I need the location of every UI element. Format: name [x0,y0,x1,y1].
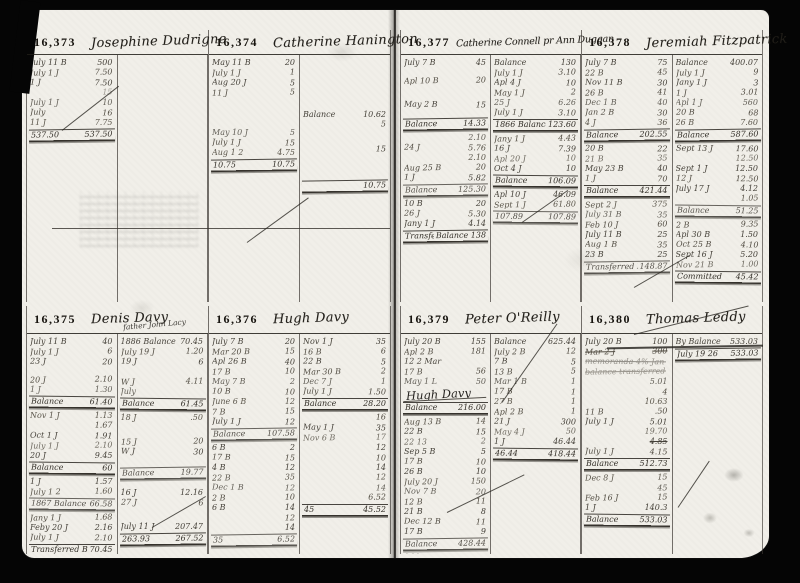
entry-date-ref: May 10 J [212,128,288,138]
ledger-entry: July 20 B155 [401,337,490,347]
entry-amount: 1.05 [740,193,758,203]
account-number: 16,377 [408,35,450,50]
balance-total-entry: Balance421.44 [584,185,670,196]
entry-amount: 10 [376,453,386,463]
ledger-entry: July 1 21.60 [27,486,117,497]
entry-amount: 12 [285,417,295,427]
account-holder-name: Hugh Davy [273,310,350,327]
ledger-entry: 10.63 [582,397,672,407]
entry-amount: 2.16 [95,523,113,533]
ledger-entry: 12.50 [673,153,763,164]
entry-date-ref: May 1 J [494,88,569,99]
ledger-entry: 1 J3.01 [673,87,763,98]
ledger-entry: 12 J12.50 [673,174,763,185]
entry-amount: 50 [566,426,576,436]
entries-column-1: July 11 B40July 1 J623 J2020 J2.101 J1.3… [27,334,118,554]
entry-amount: 4 [662,387,667,397]
entry-amount: 40 [657,98,667,108]
entry-amount: 2 [381,366,386,376]
entry-amount: 15 [476,100,486,110]
entry-date-ref: Feb 16 J [585,493,655,504]
entry-date-ref: July 1 J [30,441,93,452]
entry-amount: 10 [566,153,576,163]
entry-date-ref [30,95,100,96]
balance-total-entry: Balance14.33 [403,117,488,129]
entry-amount: 3.10 [558,67,576,77]
entry-amount: 3.10 [558,108,576,118]
entry-date-ref: 263.93 [121,534,173,545]
entry-date-ref: 26 B [585,88,655,99]
entry-date-ref: July 19 26 [676,349,728,360]
ledger-entry: 20 B68 [673,108,763,119]
account-number: 16,373 [34,35,76,50]
entry-amount: 1.30 [95,385,113,395]
entry-date-ref: Sep 5 B [404,447,479,457]
ledger-entry: 11 J5 [209,87,299,98]
entry-amount: 14 [285,503,295,513]
entry-amount: 20 [193,436,203,446]
entry-amount: 70.45 [90,545,113,554]
entry-date-ref: July 1 J [30,533,93,544]
entry-amount: 8 [481,507,486,517]
entry-amount: 61.80 [553,199,576,209]
ledger-entry: July 1 J10 [27,98,117,108]
ledger-entry: 1886 Balance70.45 [118,337,208,347]
account-panel-16379: 16,379Peter O'ReillyJuly 20 B155Apl 2 B1… [400,306,581,554]
ledger-entry: Balance130 [491,58,580,68]
entry-amount: 28.20 [363,399,386,409]
entry-amount: 40 [657,164,667,174]
entry-date-ref: Balance [676,130,728,141]
ledger-entry: Sept 1 J12.50 [673,164,763,174]
ledger-entry: July 1 J1.50 [300,387,390,398]
entry-date-ref: Balance [494,337,546,347]
ledger-entry: July 1 J2.10 [27,533,117,544]
ledger-entry: 17 B15 [209,453,299,464]
left-page-bottom-row: 16,375Denis Davyfather John LacyJuly 11 … [26,306,391,554]
entry-amount: 1.20 [185,346,203,356]
ledger-entry: Jany 1 J4.14 [401,219,490,229]
entry-amount: 418.44 [548,449,576,459]
entry-amount: 4.10 [740,240,758,250]
ledger-entry: 12 [300,443,390,453]
ledger-entry: W J30 [118,447,208,458]
ledger-entry: 17 B9 [401,527,490,537]
entry-amount: 25 [657,230,667,240]
balance-total-entry: TransferredBalance 138 [403,229,488,241]
ledger-entry: 20 J2.10 [27,374,117,385]
entry-date-ref: Transferred [405,231,434,241]
entry-amount: 9.35 [740,219,758,229]
ledger-entry: 26 J5.30 [401,209,490,220]
entry-amount: 35 [285,472,295,482]
balance-total-entry: 46.44418.44 [493,448,578,460]
ledger-entry: Sep 5 B5 [401,447,490,457]
entry-date-ref: Committed [676,272,733,283]
entry-date-ref: 17 B [404,527,479,537]
entry-date-ref: 537.50 [31,130,83,141]
entry-date-ref: July 11 B [30,337,100,347]
entry-amount: 20 [476,162,486,172]
entry-date-ref [303,500,366,501]
entry-date-ref: Balance [676,58,729,68]
entry-amount: 45.52 [363,505,386,515]
entry-date-ref: Apl 10 J [494,190,551,200]
entry-amount: 6 [107,346,112,356]
entry-amount: 5 [290,128,295,138]
entry-date-ref: Balance [304,399,361,409]
entry-date-ref [303,420,374,421]
entry-date-ref: 1866 Balance [495,120,546,130]
entry-amount: 6 [381,346,386,356]
entry-amount: 428.44 [458,538,486,548]
entry-amount: 20 [476,75,486,85]
entry-date-ref: July 20 B [404,337,469,347]
entry-amount: 5 [381,119,386,129]
entry-date-ref: May 1 L [404,377,474,387]
entry-amount: 12 [285,513,295,523]
entry-amount: 15 [285,138,295,148]
ledger-entry: 1 J70 [582,174,672,185]
entry-date-ref: 25 J [494,98,556,108]
ledger-entry: Balance400.07 [673,58,763,68]
entry-amount: 14.33 [463,118,486,128]
entry-date-ref: Nov 1 J [30,411,93,421]
entry-date-ref: 16 J [121,488,179,498]
ledger-entry: 15 [300,144,390,155]
entry-date-ref: Dec 12 B [404,517,474,528]
ledger-entry: 23 B25 [582,250,672,260]
entry-amount: 16 [102,108,112,118]
entry-date-ref: Balance [303,110,361,120]
entry-date-ref: Transferred Balance [31,545,88,554]
ledger-entry: Dec 1 B40 [582,98,672,108]
ledger-entry: 5 [300,119,390,130]
entry-amount: 1 [290,67,295,77]
entries-column-2: Nov 1 J3516 B622 B5Mar 30 B2Dec 7 J1July… [300,334,390,554]
entry-date-ref: 19 J [120,357,196,368]
ledger-entry: 17 B10 [209,366,299,377]
entry-date-ref [212,520,283,521]
entry-amount: 61.40 [90,397,113,407]
entry-amount: 12.16 [180,488,203,498]
entry-amount: 60 [657,219,667,229]
entry-date-ref: Nov 6 B [303,433,374,444]
ledger-entry: 17 B1 [491,387,580,398]
ledger-entry: May 11 B20 [209,58,299,68]
entry-date-ref: Balance [121,399,178,410]
entry-amount: 181 [471,346,486,356]
ledger-entry: July 11 B40 [27,337,117,347]
entry-amount: 6.52 [277,534,295,544]
entry-date-ref: Balance [213,429,265,440]
ledger-entry: 12 [209,513,299,524]
entry-amount: 4.11 [185,376,203,386]
entry-date-ref: Sept 1 J [676,164,734,174]
entry-date-ref: July 20 B [585,337,650,347]
ledger-entry: May 1 L50 [401,377,490,387]
entry-date-ref: 12 J [675,174,733,185]
entry-amount: 587.60 [730,129,758,139]
entries-column-1: July 7 B7522 B45Nov 11 B3026 B41Dec 1 B4… [582,55,673,302]
entry-date-ref: Apl 4 J [494,78,564,89]
entry-amount: 4.15 [650,447,668,457]
entry-amount: 512.73 [640,459,668,469]
account-entries: July 7 B45Apl 10 B20May 2 B15Balance14.3… [401,55,581,302]
ledger-entry: 6 B14 [209,503,299,513]
entry-date-ref: July 1 J [494,108,556,119]
balance-total-entry: Balance61.45 [119,398,205,410]
ledger-entry: July 1 J3.10 [491,108,580,119]
entry-date-ref: Mar 1 B [494,377,569,387]
entry-date-ref: 266 [404,553,484,554]
account-entries: May 11 B20July 1 J1Aug 20 J511 J5May 10 … [209,55,390,302]
entry-date-ref: 1 J [30,477,93,487]
entry-amount: 2.10 [95,440,113,450]
entry-date-ref: 17 B [404,367,474,378]
entry-date-ref: Transferred Balance [586,262,638,273]
entry-amount: 25 [657,250,667,260]
entry-amount: 1.68 [95,512,113,522]
ledger-entry: July 17 J4.12 [673,184,763,194]
ledger-entry: 19 J6 [118,357,208,368]
entry-date-ref: 17 B [404,457,474,468]
entry-date-ref: Mar 30 B [303,367,379,378]
scanned-ledger-photo: { "colors": { "background": "#050505", "… [0,0,800,583]
ledger-entry: Aug 1 24.75 [209,148,299,158]
entry-amount: 11 [476,517,486,527]
ledger-entry: 24 J5.76 [401,143,490,154]
entry-date-ref: July 11 B [30,58,95,68]
entry-amount: 60 [102,463,112,473]
entry-amount: 19.70 [645,426,668,436]
entry-date-ref: 17 B [212,367,283,378]
account-entries: July 11 B500July 1 J7.501 J7.5015July 1 … [27,55,208,302]
ledger-entry: June 6 B12 [209,397,299,407]
entry-amount: 1.50 [740,230,758,240]
entry-date-ref [585,490,655,491]
entry-amount: 140.3 [645,503,668,513]
entry-date-ref: 1 J [494,437,551,447]
entries-column-1: May 11 B20July 1 J1Aug 20 J511 J5May 10 … [209,55,300,302]
entry-date-ref: Balance [405,403,456,413]
entry-date-ref: July 7 B [212,337,283,347]
entry-date-ref: 4 B [212,463,283,473]
entry-date-ref: 6 B [212,443,288,453]
entry-amount: 10 [285,366,295,376]
ledger-entry: 20 J9.45 [27,451,117,461]
account-panel-16373: 16,373Josephine DudrigneJuly 11 B500July… [26,30,208,302]
ledger-entry: 1.05 [673,193,763,204]
ledger-entry: 4 [582,387,672,398]
balance-total-entry: Balance587.60 [674,128,760,140]
balance-total-entry: July 19 26533.03 [674,347,760,359]
entry-amount: 12 [376,443,386,453]
entry-date-ref: 20 J [30,375,93,386]
ledger-entry: May 2 B15 [401,100,490,111]
entry-amount: 51.25 [735,206,758,216]
ledger-entry: 10 [300,453,390,464]
entry-date-ref: May 23 B [585,164,655,174]
ledger-entry: 17 B10 [401,457,490,468]
right-page-bottom-row: 16,379Peter O'ReillyJuly 20 B155Apl 2 B1… [400,306,763,554]
entry-amount: 10 [476,457,486,467]
balance-total-entry: 4545.52 [302,504,388,515]
ledger-entry: July 1 J15 [209,138,299,149]
entry-amount: 7.75 [95,118,113,128]
ledger-entry: 1 J140.3 [582,503,672,513]
entry-amount: 15 [285,453,295,463]
entry-amount: 14 [476,416,486,426]
balance-total-entry: Balance512.73 [584,458,670,469]
entry-amount: 9 [481,527,486,537]
balance-total-entry: Balance125.30 [403,183,488,195]
entry-amount: 1 [571,377,576,387]
entry-date-ref: Apl 1 J [676,98,741,108]
ledger-entry: 2 B10 [209,492,299,503]
entry-date-ref: Sept 13 J [675,144,733,155]
entry-date-ref: Balance [586,186,638,196]
ledger-entry: 26 B10 [401,467,490,477]
entry-date-ref: July 31 B [585,210,655,221]
entry-amount: 20 [102,357,112,367]
entries-column-1: July 11 B500July 1 J7.501 J7.5015July 1 … [27,55,118,302]
ledger-entry: 26 B41 [582,87,672,98]
ledger-entry: 1 J46.44 [491,437,580,447]
entry-amount: 61.45 [180,399,203,409]
account-header: 16,378Jeremiah Fitzpatrick [582,30,762,55]
entry-amount: 17 [376,432,386,442]
ledger-entry: Dec 7 J1 [300,377,390,387]
account-panel-16380: 16,380Thomas LeddyJuly 20 B100Mar 2 J300… [581,306,762,554]
entry-date-ref: 26 J [404,209,466,220]
entry-date-ref: May 1 J [303,423,374,434]
ledger-entry: 26 B7.60 [673,118,763,128]
entry-date-ref: 21 B [404,507,479,517]
ledger-entry: May 7 B2 [209,377,299,387]
entry-amount: .50 [190,413,203,423]
account-holder-name: Peter O'Reilly [465,310,560,328]
ledger-entry: Balance625.44 [491,337,580,347]
ledger-entry: Sept 16 J5.20 [673,250,763,260]
entry-date-ref: July 17 J [676,184,739,194]
ledger-entry: Jan 2 B30 [582,108,672,119]
entry-amount: 68 [748,108,758,118]
entry-amount: 10 [566,164,576,174]
entry-date-ref: Oct 25 B [675,240,738,251]
entry-date-ref: Balance [495,176,546,187]
entry-date-ref: Oct 1 J [30,431,93,442]
entry-date-ref: 11 J [30,118,93,128]
ruled-line [52,228,390,229]
entry-amount: 10.75 [363,180,386,190]
entry-amount: 15 [657,492,667,502]
entry-amount: 125.30 [458,184,486,194]
account-panel-16376: 16,376Hugh DavyJuly 7 B20Mar 20 B15Apl 2… [208,306,390,554]
entry-date-ref: Apl 30 B [676,230,739,240]
ledger-entry: July 1 J12 [209,417,299,428]
ledger-entry: Nov 6 B17 [300,432,390,443]
ledger-entry: 19.70 [582,426,672,437]
account-number: 16,376 [216,312,258,327]
entry-date-ref: July 1 2 [30,487,93,498]
entry-amount: 1 [381,377,386,387]
entries-column-2: Balance10.6251510.75 [300,55,390,302]
ledger-entry: July 1 J2.10 [27,440,117,451]
ledger-entry: Dec 12 B11 [401,517,490,528]
entry-date-ref: balance transferred Jany 13 [585,366,666,377]
entry-amount: 216.00 [458,403,486,413]
entry-date-ref: July 7 B [585,58,655,68]
ledger-entry: Hugh Davy [403,387,486,402]
entry-date-ref: 1 J [675,88,738,99]
account-entries: July 7 B20Mar 20 B15Apl 26 B4017 B10May … [209,334,390,554]
ledger-page-right: 16,377Catherine Connell pr Ann DugganJul… [400,10,763,558]
entry-date-ref: 2 B [212,493,283,504]
entry-date-ref: July 1 J [303,387,366,398]
entry-amount: 12 [566,346,576,356]
ledger-entry: July 11 J207.47 [118,522,208,532]
entries-column-1: July 20 B100Mar 2 J300memoranda 4% Jan 1… [582,334,673,554]
ledger-entry: May 1 J2 [491,87,580,98]
ledger-entry: July 7 B45 [401,58,490,68]
entry-amount: 12.50 [735,153,758,163]
entry-amount: 421.44 [640,186,668,196]
entry-amount: 14 [285,523,295,533]
entry-date-ref: May 7 B [212,377,288,387]
ledger-page-left: 16,373Josephine DudrigneJuly 11 B500July… [26,10,391,558]
entry-amount: 2 [290,443,295,453]
balance-total-entry: 1867 Balance66.58 [29,498,115,510]
entry-date-ref: Balance [494,58,559,68]
entry-amount: 12.50 [735,174,758,184]
entry-amount: 2.10 [468,133,486,143]
entry-amount: 15 [376,144,386,154]
entry-amount: 4.14 [468,219,486,229]
entry-amount: .50 [655,406,668,416]
entry-date-ref: 20 B [585,144,655,155]
ledger-entry: Mar 30 B2 [300,366,390,377]
ledger-entry: 10 B10 [209,387,299,398]
account-panel-16375: 16,375Denis Davyfather John LacyJuly 11 … [26,306,208,554]
entry-date-ref: 17 B [212,453,283,464]
account-number: 16,375 [34,312,76,327]
ledger-entry: Apl 1 J560 [673,98,763,108]
entries-column-2: Balance130July 1 J3.10Apl 4 J10May 1 J22… [491,55,581,302]
ledger-entry: 14 [300,463,390,473]
entry-date-ref: 12 B [404,497,474,508]
entry-date-ref: 1 J [30,385,93,395]
entry-amount: 36 [657,118,667,128]
entry-date-ref: 22 13 [404,437,479,448]
ledger-entry: July [118,387,208,397]
entry-date-ref: 20 J [30,451,93,461]
entry-amount: 56 [476,366,486,376]
entries-column-2: Balance625.44July 2 B127 B513 B5Mar 1 B1… [491,334,581,554]
entry-date-ref: 1 J [30,78,93,89]
entry-date-ref: W J [120,377,183,388]
account-header: 16,376Hugh Davy [209,306,390,334]
account-panel-16374: 16,374Catherine HaningtonMay 11 B20July … [208,30,390,302]
entry-amount: 202.55 [639,129,667,139]
entries-column-2: Balance400.07July 1 J9Jany 1 J31 J3.01Ap… [673,55,763,302]
entry-date-ref: Jany 1 J [404,219,466,229]
entry-date-ref: Apl 10 B [404,76,474,87]
account-panel-16378: 16,378Jeremiah FitzpatrickJuly 7 B7522 B… [581,30,762,302]
ledger-entry: 14 [209,523,299,533]
entry-date-ref: Balance [405,185,456,196]
balance-total-entry: Balance428.44 [403,537,488,549]
